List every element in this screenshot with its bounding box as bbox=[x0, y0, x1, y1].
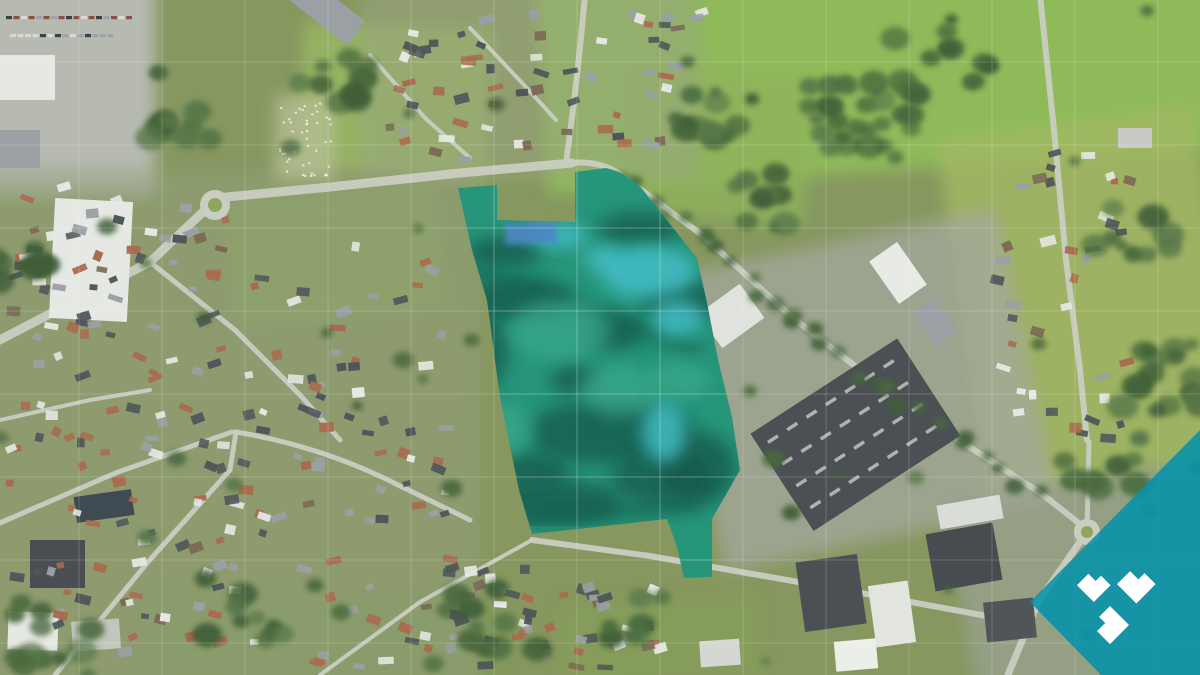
tree-canopy bbox=[762, 450, 784, 468]
house-roof bbox=[561, 129, 572, 136]
tree-canopy bbox=[158, 112, 179, 128]
tree-canopy bbox=[66, 638, 98, 663]
site-light-patch bbox=[510, 300, 610, 360]
tree-canopy bbox=[30, 602, 53, 620]
house-roof bbox=[530, 54, 542, 61]
tree-canopy bbox=[487, 98, 505, 112]
house-roof bbox=[271, 349, 282, 361]
tree-canopy bbox=[417, 374, 428, 383]
tree-canopy bbox=[846, 119, 868, 136]
house-roof bbox=[400, 127, 408, 135]
cemetery-dot bbox=[311, 113, 313, 115]
tree-canopy bbox=[979, 58, 999, 74]
tree-canopy bbox=[289, 74, 312, 93]
tree-canopy bbox=[762, 163, 789, 185]
tree-canopy bbox=[1102, 199, 1124, 217]
house-roof bbox=[46, 411, 58, 420]
house-roof bbox=[330, 325, 346, 332]
tree-canopy bbox=[1137, 204, 1169, 229]
house-roof bbox=[418, 361, 434, 371]
house-roof bbox=[188, 286, 197, 292]
tree-canopy bbox=[880, 27, 909, 50]
tree-canopy bbox=[809, 113, 825, 126]
tree-canopy bbox=[782, 505, 801, 520]
house-roof bbox=[612, 132, 624, 140]
cemetery-dot bbox=[283, 121, 285, 123]
cemetery-dot bbox=[319, 102, 321, 104]
cemetery-dot bbox=[315, 105, 317, 107]
house-roof bbox=[244, 371, 253, 379]
tree-canopy bbox=[37, 255, 61, 274]
tree-canopy bbox=[1031, 338, 1046, 350]
car bbox=[93, 34, 99, 37]
cemetery-dot bbox=[306, 138, 308, 140]
tree-canopy bbox=[437, 601, 458, 618]
car bbox=[96, 16, 102, 19]
tree-canopy bbox=[859, 71, 889, 95]
building-roof bbox=[0, 130, 40, 168]
house-roof bbox=[1029, 390, 1037, 400]
cemetery-dot bbox=[288, 158, 290, 160]
car bbox=[36, 16, 42, 19]
tree-canopy bbox=[315, 59, 331, 72]
tree-canopy bbox=[331, 604, 351, 620]
house-roof bbox=[315, 457, 325, 467]
roundabout-island bbox=[208, 198, 222, 212]
tree-canopy bbox=[24, 241, 44, 257]
car bbox=[51, 16, 57, 19]
tree-canopy bbox=[743, 386, 757, 397]
car bbox=[29, 16, 35, 19]
car bbox=[66, 16, 72, 19]
tree-canopy bbox=[936, 23, 957, 40]
tree-canopy bbox=[255, 631, 276, 648]
car bbox=[21, 16, 27, 19]
tree-canopy bbox=[681, 86, 704, 104]
tree-canopy bbox=[51, 652, 68, 666]
tree-canopy bbox=[749, 290, 765, 303]
tree-canopy bbox=[197, 312, 212, 324]
tree-canopy bbox=[524, 638, 552, 661]
car bbox=[108, 34, 114, 37]
tree-canopy bbox=[248, 611, 266, 625]
tree-canopy bbox=[1081, 234, 1109, 256]
car bbox=[119, 16, 125, 19]
house-roof bbox=[296, 287, 310, 296]
cemetery-dot bbox=[304, 105, 306, 107]
tree-canopy bbox=[749, 189, 773, 209]
house-roof bbox=[1081, 152, 1095, 159]
house-roof bbox=[514, 140, 524, 149]
cemetery-dot bbox=[330, 140, 332, 142]
car bbox=[70, 34, 76, 37]
house-roof bbox=[348, 362, 360, 371]
house-roof bbox=[288, 374, 304, 384]
house-roof bbox=[87, 321, 101, 329]
house-roof bbox=[648, 37, 659, 43]
house-roof bbox=[217, 441, 230, 449]
house-roof bbox=[449, 633, 458, 641]
tree-canopy bbox=[1157, 238, 1182, 258]
tree-canopy bbox=[485, 579, 509, 598]
cemetery-dot bbox=[325, 116, 327, 118]
tree-canopy bbox=[403, 109, 415, 119]
tree-canopy bbox=[1138, 363, 1165, 384]
house-roof bbox=[345, 509, 353, 516]
cemetery-dot bbox=[313, 174, 315, 176]
aerial-map-image bbox=[0, 0, 1200, 675]
car bbox=[81, 16, 87, 19]
tree-canopy bbox=[140, 258, 152, 268]
tree-canopy bbox=[456, 597, 484, 620]
tree-canopy bbox=[135, 125, 166, 150]
tree-canopy bbox=[784, 308, 803, 323]
tree-canopy bbox=[1035, 485, 1048, 496]
house-roof bbox=[319, 422, 334, 433]
car bbox=[6, 16, 12, 19]
tree-canopy bbox=[962, 76, 979, 89]
tree-canopy bbox=[493, 613, 517, 633]
tree-canopy bbox=[854, 133, 885, 158]
house-roof bbox=[439, 135, 455, 142]
house-roof bbox=[520, 565, 530, 574]
cemetery-dot bbox=[288, 118, 290, 120]
tree-canopy bbox=[1184, 338, 1199, 350]
house-roof bbox=[644, 21, 653, 28]
car bbox=[59, 16, 65, 19]
cemetery-dot bbox=[328, 118, 330, 120]
tree-canopy bbox=[1124, 452, 1143, 467]
site-blue-roof bbox=[505, 222, 558, 245]
tree-canopy bbox=[10, 594, 31, 611]
tree-canopy bbox=[1140, 5, 1154, 16]
house-roof bbox=[1100, 434, 1116, 444]
tree-canopy bbox=[174, 127, 201, 149]
tree-canopy bbox=[423, 655, 444, 672]
house-roof bbox=[494, 601, 507, 608]
tree-canopy bbox=[393, 352, 414, 369]
site-cyan-patch bbox=[584, 246, 620, 270]
house-roof bbox=[336, 363, 346, 372]
house-roof bbox=[89, 284, 97, 290]
house-roof bbox=[46, 231, 55, 241]
building-roof bbox=[795, 554, 866, 632]
tree-canopy bbox=[309, 75, 333, 94]
tree-canopy bbox=[749, 273, 761, 283]
tree-canopy bbox=[709, 87, 722, 97]
house-roof bbox=[643, 69, 655, 75]
car bbox=[18, 34, 24, 37]
house-roof bbox=[351, 241, 360, 251]
car bbox=[104, 16, 110, 19]
house-roof bbox=[412, 282, 423, 288]
car bbox=[111, 16, 117, 19]
tree-canopy bbox=[306, 579, 323, 593]
house-roof bbox=[477, 661, 493, 670]
tree-canopy bbox=[97, 219, 117, 235]
cemetery-dot bbox=[315, 150, 317, 152]
tree-canopy bbox=[679, 211, 693, 222]
house-roof bbox=[100, 449, 110, 456]
car bbox=[44, 16, 50, 19]
tree-canopy bbox=[321, 328, 333, 338]
house-roof bbox=[458, 156, 471, 163]
house-roof bbox=[33, 360, 45, 369]
tree-canopy bbox=[183, 101, 211, 123]
cemetery-dot bbox=[310, 175, 312, 177]
car bbox=[63, 34, 69, 37]
house-roof bbox=[438, 425, 454, 431]
tree-canopy bbox=[1130, 430, 1150, 446]
building-roof bbox=[925, 523, 1002, 592]
car bbox=[25, 34, 31, 37]
tree-canopy bbox=[1005, 478, 1024, 494]
roundabout-island bbox=[1081, 526, 1093, 538]
house-roof bbox=[63, 589, 71, 595]
tree-canopy bbox=[887, 70, 917, 94]
cemetery-dot bbox=[290, 121, 292, 123]
cemetery-dot bbox=[299, 108, 301, 110]
cemetery-dot bbox=[286, 160, 288, 162]
house-roof bbox=[534, 31, 546, 41]
cemetery-dot bbox=[295, 112, 297, 114]
tree-canopy bbox=[760, 657, 771, 666]
tree-canopy bbox=[280, 139, 301, 155]
tree-canopy bbox=[806, 322, 824, 336]
tree-canopy bbox=[652, 590, 671, 605]
tree-canopy bbox=[850, 372, 867, 385]
car bbox=[89, 16, 95, 19]
cemetery-dot bbox=[305, 123, 307, 125]
tree-canopy bbox=[77, 618, 104, 640]
tree-canopy bbox=[341, 84, 372, 109]
cemetery-dot bbox=[286, 170, 288, 172]
tree-canopy bbox=[1116, 241, 1129, 251]
house-roof bbox=[598, 125, 614, 134]
house-roof bbox=[597, 664, 613, 670]
cemetery-dot bbox=[302, 164, 304, 166]
tree-canopy bbox=[228, 596, 245, 609]
tree-canopy bbox=[352, 401, 363, 410]
car bbox=[55, 34, 61, 37]
cemetery-dot bbox=[302, 174, 304, 176]
car bbox=[100, 34, 106, 37]
tree-canopy bbox=[225, 478, 243, 492]
house-roof bbox=[464, 565, 478, 577]
tree-canopy bbox=[601, 620, 618, 634]
house-roof bbox=[353, 663, 365, 669]
house-roof bbox=[433, 86, 445, 95]
house-roof bbox=[6, 479, 14, 486]
tree-canopy bbox=[1125, 248, 1142, 262]
tree-canopy bbox=[833, 75, 856, 93]
tree-canopy bbox=[1053, 452, 1075, 470]
house-roof bbox=[516, 89, 529, 97]
cemetery-dot bbox=[306, 130, 308, 132]
tree-canopy bbox=[724, 256, 737, 266]
land-patch bbox=[275, 95, 335, 180]
cemetery-dot bbox=[306, 120, 308, 122]
car bbox=[40, 34, 46, 37]
cemetery-dot bbox=[324, 141, 326, 143]
aerial-map bbox=[0, 0, 1200, 675]
house-roof bbox=[378, 657, 394, 665]
tree-canopy bbox=[4, 648, 29, 668]
tree-canopy bbox=[349, 63, 366, 77]
house-roof bbox=[1005, 300, 1021, 310]
house-roof bbox=[661, 13, 675, 22]
cemetery-dot bbox=[302, 109, 304, 111]
tree-canopy bbox=[1148, 403, 1166, 418]
tree-canopy bbox=[724, 115, 750, 136]
tree-canopy bbox=[869, 379, 882, 390]
house-roof bbox=[559, 592, 568, 598]
tree-canopy bbox=[469, 641, 480, 650]
house-roof bbox=[21, 402, 30, 410]
tree-canopy bbox=[624, 627, 643, 642]
cemetery-dot bbox=[304, 175, 306, 177]
tree-canopy bbox=[727, 179, 745, 194]
tree-canopy bbox=[820, 139, 841, 156]
house-roof bbox=[1015, 183, 1031, 190]
house-roof bbox=[80, 329, 89, 339]
tree-canopy bbox=[766, 297, 785, 312]
house-roof bbox=[205, 269, 221, 277]
tree-canopy bbox=[938, 38, 965, 59]
car bbox=[85, 34, 91, 37]
tree-canopy bbox=[887, 151, 903, 164]
house-roof bbox=[172, 234, 187, 244]
car bbox=[126, 16, 132, 19]
tree-canopy bbox=[913, 401, 927, 412]
tree-canopy bbox=[956, 437, 971, 449]
cemetery-dot bbox=[292, 130, 294, 132]
house-roof bbox=[193, 602, 205, 612]
tree-canopy bbox=[138, 530, 157, 546]
tree-canopy bbox=[836, 470, 846, 478]
tree-canopy bbox=[678, 117, 695, 131]
tree-canopy bbox=[945, 14, 958, 24]
building-roof bbox=[983, 597, 1037, 642]
house-roof bbox=[179, 203, 192, 213]
tree-canopy bbox=[1065, 467, 1087, 484]
tree-canopy bbox=[943, 586, 953, 594]
house-roof bbox=[352, 387, 365, 398]
site-light-patch bbox=[580, 365, 660, 415]
tree-canopy bbox=[1082, 475, 1114, 500]
tree-canopy bbox=[149, 65, 169, 81]
car bbox=[10, 34, 16, 37]
tree-canopy bbox=[830, 345, 846, 358]
tree-canopy bbox=[887, 397, 907, 413]
house-roof bbox=[1046, 408, 1058, 416]
cemetery-dot bbox=[316, 122, 318, 124]
house-roof bbox=[86, 208, 99, 218]
house-roof bbox=[385, 123, 394, 131]
house-roof bbox=[77, 438, 84, 448]
house-roof bbox=[617, 139, 631, 147]
car bbox=[33, 34, 39, 37]
tree-canopy bbox=[195, 570, 217, 587]
house-roof bbox=[300, 461, 311, 471]
cemetery-dot bbox=[311, 172, 313, 174]
tree-canopy bbox=[464, 334, 480, 347]
house-roof bbox=[375, 515, 388, 524]
tree-canopy bbox=[799, 78, 821, 95]
tree-canopy bbox=[468, 620, 484, 633]
cemetery-dot bbox=[280, 107, 282, 109]
tree-canopy bbox=[1140, 345, 1156, 358]
house-roof bbox=[160, 613, 171, 623]
car bbox=[48, 34, 54, 37]
tree-canopy bbox=[167, 451, 186, 466]
cemetery-dot bbox=[308, 162, 310, 164]
tree-canopy bbox=[707, 240, 723, 253]
house-roof bbox=[169, 259, 178, 266]
tree-canopy bbox=[920, 50, 941, 67]
tree-canopy bbox=[991, 462, 1004, 473]
car bbox=[78, 34, 84, 37]
car bbox=[14, 16, 20, 19]
tree-canopy bbox=[441, 480, 462, 497]
tree-canopy bbox=[934, 418, 948, 429]
cemetery-dot bbox=[316, 110, 318, 112]
tree-canopy bbox=[898, 104, 925, 125]
tree-canopy bbox=[745, 93, 760, 105]
house-roof bbox=[193, 498, 202, 506]
cemetery-dot bbox=[330, 123, 332, 125]
cemetery-dot bbox=[301, 131, 303, 133]
tree-canopy bbox=[628, 588, 652, 607]
site-cyan-patch bbox=[642, 402, 686, 462]
house-roof bbox=[141, 613, 149, 619]
house-roof bbox=[461, 56, 477, 66]
tree-canopy bbox=[1107, 394, 1139, 419]
tree-canopy bbox=[232, 614, 249, 628]
tree-canopy bbox=[699, 121, 725, 142]
